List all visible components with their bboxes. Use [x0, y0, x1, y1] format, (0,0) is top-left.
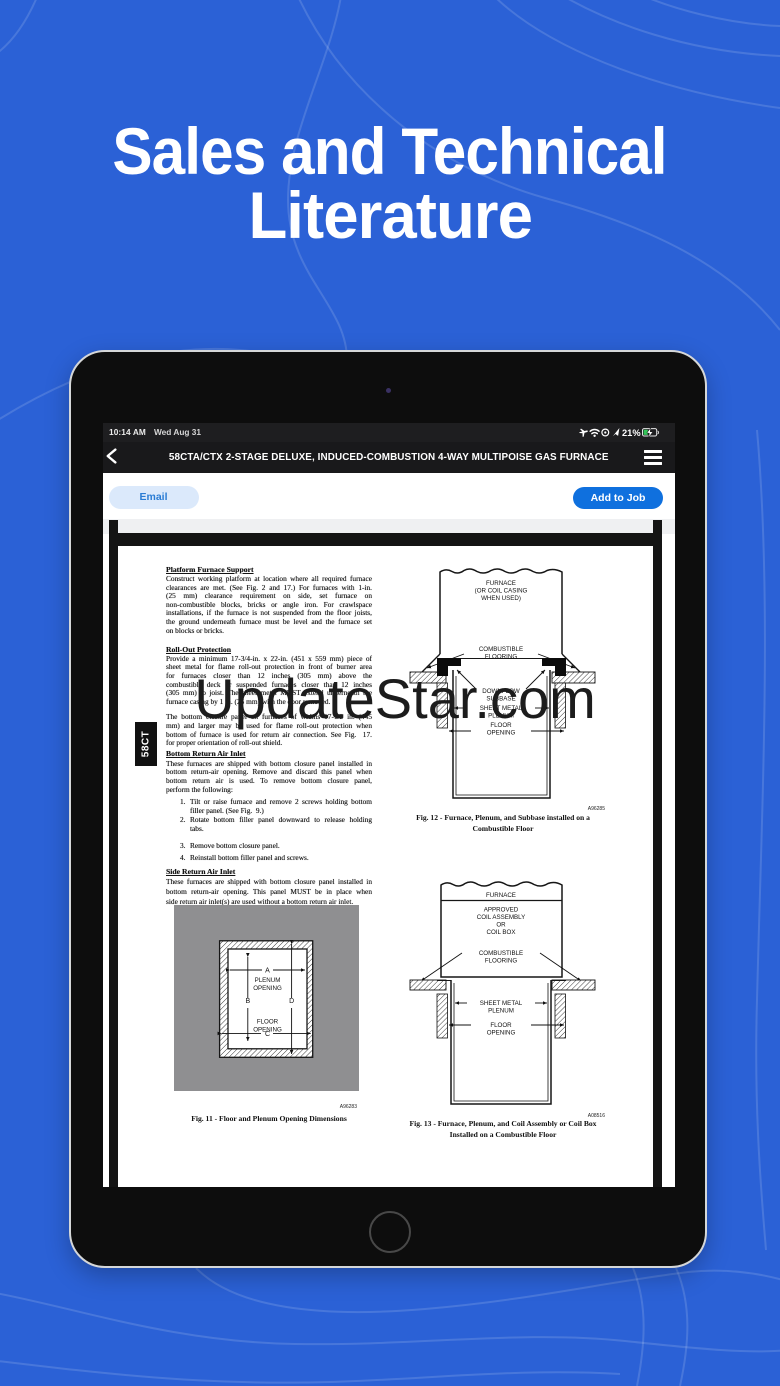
- svg-text:SHEET METAL: SHEET METAL: [480, 1000, 523, 1007]
- svg-text:A96283: A96283: [340, 1104, 357, 1110]
- svg-text:WHEN USED): WHEN USED): [481, 595, 521, 602]
- svg-text:Installed on a Combustible Flo: Installed on a Combustible Floor: [450, 1130, 557, 1139]
- svg-text:OPENING: OPENING: [253, 985, 282, 992]
- svg-text:FLOORING: FLOORING: [485, 654, 518, 661]
- svg-text:COMBUSTIBLE: COMBUSTIBLE: [479, 646, 523, 653]
- svg-text:OPENING: OPENING: [487, 730, 516, 737]
- svg-text:Fig. 12 - Furnace, Plenum, and: Fig. 12 - Furnace, Plenum, and Subbase i…: [416, 813, 590, 822]
- svg-text:FURNACE: FURNACE: [486, 580, 516, 587]
- svg-text:B: B: [245, 998, 250, 1005]
- svg-text:COMBUSTIBLE: COMBUSTIBLE: [479, 950, 523, 957]
- svg-text:PLENUM: PLENUM: [488, 1008, 514, 1015]
- svg-text:COIL ASSEMBLY: COIL ASSEMBLY: [477, 914, 526, 921]
- svg-text:COIL BOX: COIL BOX: [487, 929, 516, 936]
- svg-text:21%: 21%: [622, 428, 641, 438]
- svg-text:PLENUM: PLENUM: [255, 977, 281, 984]
- svg-text:FLOORING: FLOORING: [485, 958, 518, 965]
- svg-text:A96285: A96285: [588, 806, 605, 812]
- svg-text:FLOOR: FLOOR: [490, 1022, 512, 1029]
- svg-text:OR: OR: [496, 922, 506, 929]
- svg-text:FURNACE: FURNACE: [486, 892, 516, 899]
- svg-text:FLOOR: FLOOR: [257, 1019, 279, 1026]
- svg-text:D: D: [289, 998, 294, 1005]
- svg-text:OPENING: OPENING: [487, 1030, 516, 1037]
- svg-text:Fig. 13 - Furnace, Plenum, and: Fig. 13 - Furnace, Plenum, and Coil Asse…: [410, 1119, 597, 1128]
- svg-text:(OR COIL CASING: (OR COIL CASING: [475, 588, 528, 595]
- svg-text:Fig. 11 - Floor and Plenum Ope: Fig. 11 - Floor and Plenum Opening Dimen…: [191, 1114, 347, 1123]
- svg-text:A: A: [265, 968, 270, 975]
- svg-text:APPROVED: APPROVED: [484, 907, 519, 914]
- svg-text:Combustible Floor: Combustible Floor: [473, 824, 535, 833]
- svg-text:C: C: [265, 1031, 270, 1038]
